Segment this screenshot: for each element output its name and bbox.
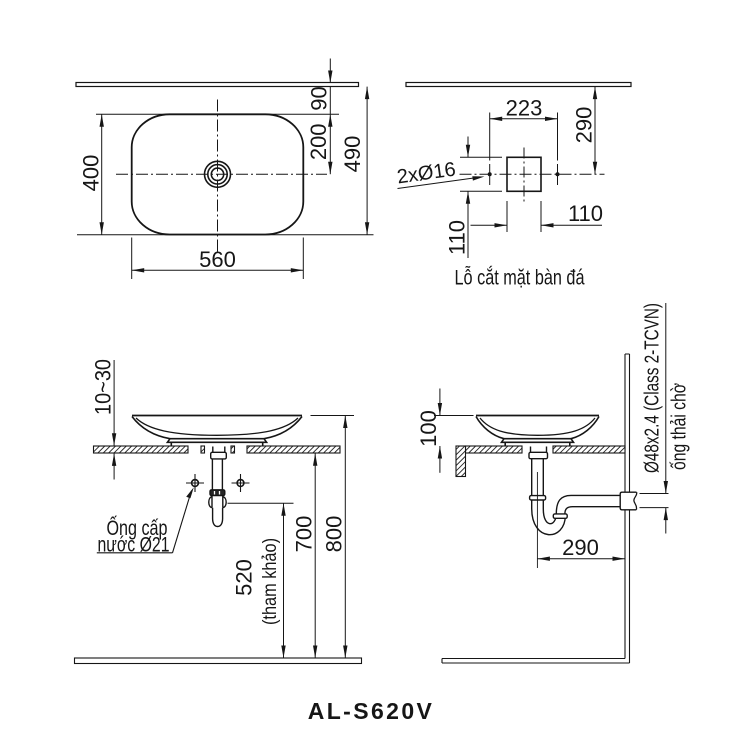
svg-text:560: 560 (199, 247, 236, 272)
svg-text:490: 490 (340, 136, 365, 173)
svg-text:Lỗ cắt mặt bàn đá: Lỗ cắt mặt bàn đá (455, 267, 585, 290)
svg-text:2xØ16: 2xØ16 (396, 158, 457, 188)
svg-text:800: 800 (321, 516, 346, 553)
svg-text:(tham khảo): (tham khảo) (260, 538, 281, 625)
svg-text:ống thải chờ: ống thải chờ (668, 383, 690, 470)
svg-text:700: 700 (291, 516, 316, 553)
svg-text:110: 110 (568, 201, 603, 226)
svg-text:10~30: 10~30 (90, 359, 115, 415)
svg-text:200: 200 (306, 123, 331, 160)
svg-text:520: 520 (232, 559, 257, 596)
svg-text:290: 290 (562, 535, 599, 560)
svg-text:AL-S620V: AL-S620V (308, 698, 435, 724)
svg-text:290: 290 (572, 107, 597, 144)
svg-text:Ø48x2.4 (Class 2-TCVN): Ø48x2.4 (Class 2-TCVN) (642, 303, 664, 473)
svg-text:223: 223 (506, 95, 543, 120)
svg-text:nước Ø21: nước Ø21 (98, 533, 170, 556)
svg-text:110: 110 (444, 220, 469, 255)
svg-text:400: 400 (78, 155, 103, 192)
svg-text:90: 90 (307, 86, 332, 110)
svg-text:100: 100 (416, 410, 441, 447)
